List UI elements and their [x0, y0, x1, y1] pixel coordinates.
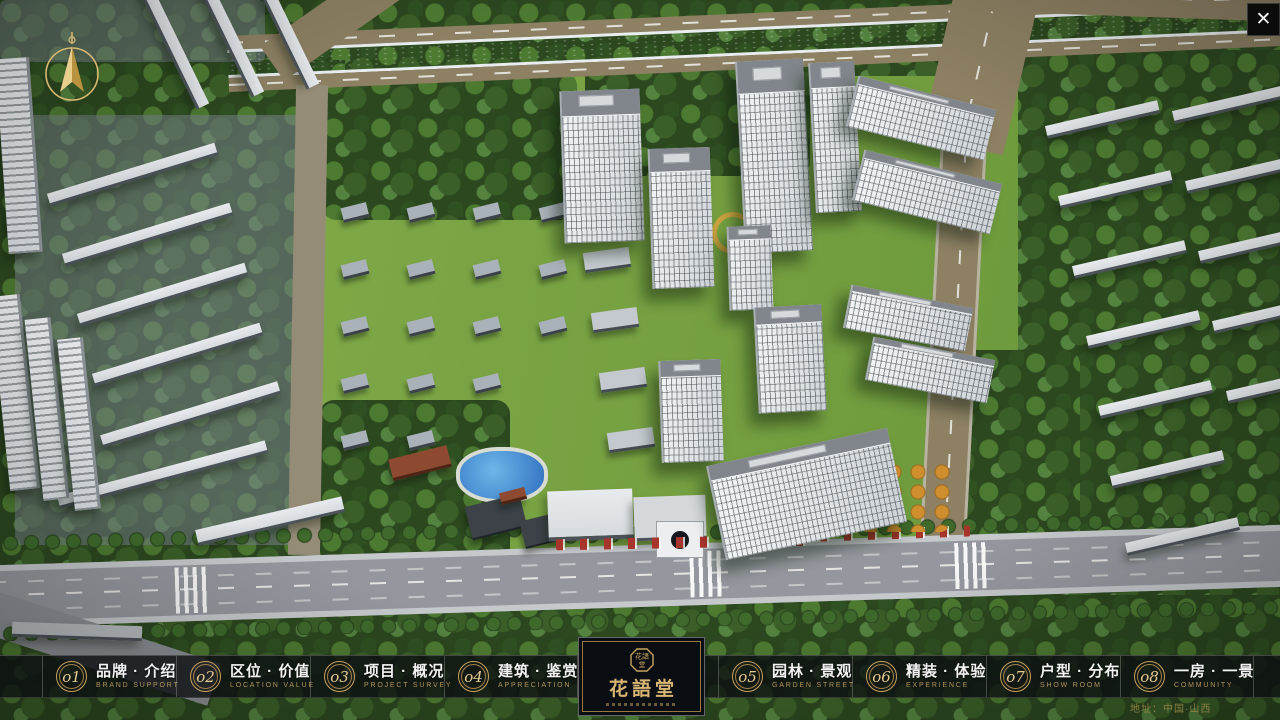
nav-item-location-value[interactable]: o2 区位 · 价值 LOCATION VALUE: [176, 656, 310, 697]
nav-item-architecture[interactable]: o4 建筑 · 鉴赏 APPRECIATION: [444, 656, 578, 697]
nav-group-left: o1 品牌 · 介绍 BRAND SUPPORT o2 区位 · 价值 LOCA…: [42, 656, 578, 697]
nav-item-interior-experience[interactable]: o6 精装 · 体验 EXPERIENCE: [852, 656, 986, 697]
nav-label-en: SHOW ROOM: [1040, 682, 1120, 689]
tree-canopy: [322, 72, 577, 220]
nav-item-garden-landscape[interactable]: o5 园林 · 景观 GARDEN STREET: [718, 656, 852, 697]
nav-label: 项目 · 概况 PROJECT SURVEY: [364, 664, 452, 689]
nav-label-en: COMMUNITY: [1174, 682, 1254, 689]
nav-label-zh: 精装 · 体验: [906, 664, 986, 679]
nav-label: 园林 · 景观 GARDEN STREET: [772, 664, 855, 689]
nav-number: o3: [330, 668, 349, 686]
tower: [753, 304, 826, 413]
nav-label-zh: 一房 · 一景: [1174, 664, 1254, 679]
address-text: 地址：中国·山西: [1130, 700, 1211, 715]
nav-number: o7: [1006, 668, 1025, 686]
tower-roof: [810, 61, 855, 89]
scene: [0, 0, 1280, 720]
nav-group-right: o5 园林 · 景观 GARDEN STREET o6 精装 · 体验 EXPE…: [718, 656, 1254, 697]
logo-tagline-rule: [606, 703, 678, 706]
nav-label: 区位 · 价值 LOCATION VALUE: [230, 664, 315, 689]
compass-icon: [42, 30, 102, 113]
nav-label-en: LOCATION VALUE: [230, 682, 315, 689]
nav-label-en: APPRECIATION: [498, 682, 578, 689]
nav-label: 一房 · 一景 COMMUNITY: [1174, 664, 1254, 689]
nav-label-zh: 品牌 · 介绍: [96, 664, 180, 679]
tower-roof: [729, 225, 771, 241]
crosswalk: [954, 542, 987, 589]
tower: [559, 89, 644, 244]
nav-item-project-survey[interactable]: o3 项目 · 概况 PROJECT SURVEY: [310, 656, 444, 697]
number-badge-icon: o3: [324, 661, 355, 692]
tower: [735, 58, 813, 253]
nav-item-floorplan[interactable]: o7 户型 · 分布 SHOW ROOM: [986, 656, 1120, 697]
nav-label-en: GARDEN STREET: [772, 682, 855, 689]
project-logo[interactable]: 花語 堂 花語堂: [578, 637, 705, 716]
nav-number: o4: [464, 668, 483, 686]
nav-label-en: EXPERIENCE: [906, 682, 986, 689]
number-badge-icon: o7: [1000, 661, 1031, 692]
nav-label: 精装 · 体验 EXPERIENCE: [906, 664, 986, 689]
tower: [658, 359, 724, 463]
number-badge-icon: o2: [190, 661, 221, 692]
nav-number: o5: [738, 668, 757, 686]
seal-text: 花語: [635, 651, 649, 660]
nav-number: o1: [62, 668, 81, 686]
nav-number: o8: [1140, 668, 1159, 686]
nav-item-room-view[interactable]: o8 一房 · 一景 COMMUNITY: [1120, 656, 1254, 697]
nav-label-zh: 户型 · 分布: [1040, 664, 1120, 679]
nav-label-zh: 建筑 · 鉴赏: [498, 664, 578, 679]
close-button[interactable]: ✕: [1247, 3, 1280, 36]
nav-label: 户型 · 分布 SHOW ROOM: [1040, 664, 1120, 689]
number-badge-icon: o6: [866, 661, 897, 692]
crosswalk: [175, 567, 208, 614]
nav-label-en: PROJECT SURVEY: [364, 682, 452, 689]
tower-roof: [755, 304, 822, 325]
nav-label: 建筑 · 鉴赏 APPRECIATION: [498, 664, 578, 689]
nav-number: o2: [196, 668, 215, 686]
nav-item-brand-intro[interactable]: o1 品牌 · 介绍 BRAND SUPPORT: [42, 656, 176, 697]
number-badge-icon: o1: [56, 661, 87, 692]
tower-roof: [650, 147, 711, 173]
tower: [648, 147, 715, 289]
logo-title: 花語堂: [609, 674, 678, 701]
svg-text:堂: 堂: [638, 660, 645, 669]
commercial-building: [547, 489, 634, 542]
tower-roof: [737, 58, 805, 94]
number-badge-icon: o4: [458, 661, 489, 692]
nav-label-zh: 园林 · 景观: [772, 664, 855, 679]
number-badge-icon: o5: [732, 661, 763, 692]
nav-label-en: BRAND SUPPORT: [96, 682, 180, 689]
tower-roof: [561, 89, 640, 118]
nav-label-zh: 项目 · 概况: [364, 664, 452, 679]
nav-label-zh: 区位 · 价值: [230, 664, 315, 679]
presentation-screen: ✕ o1 品牌 · 介绍 BRAND SUPPORT o2 区位 · 价值 LO…: [0, 0, 1280, 720]
tower: [727, 225, 774, 310]
number-badge-icon: o8: [1134, 661, 1165, 692]
nav-number: o6: [872, 668, 891, 686]
tower-roof: [660, 359, 721, 378]
nav-label: 品牌 · 介绍 BRAND SUPPORT: [96, 664, 180, 689]
seal-emblem-icon: 花語 堂: [630, 648, 654, 672]
